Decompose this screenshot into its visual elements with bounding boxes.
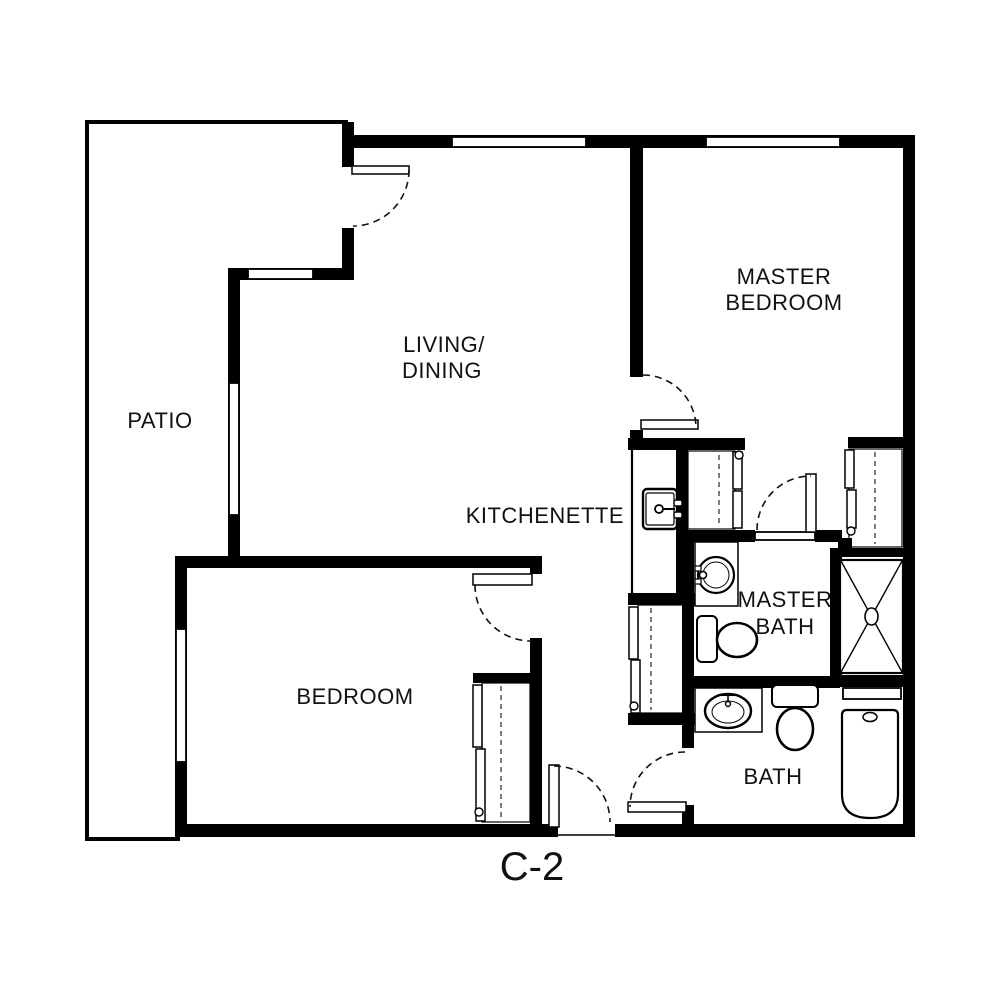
corridor-closet-right-door2 — [847, 490, 856, 528]
master-bath-faucet-handle-2 — [695, 579, 701, 584]
window-bedroom-left — [176, 629, 186, 762]
master-bedroom-label-line1: MASTER — [737, 264, 832, 289]
wall-bath-top — [694, 676, 840, 688]
shower-drain — [865, 608, 878, 625]
wall-bottom — [175, 824, 915, 837]
bath-door-swing — [630, 752, 685, 807]
patio-outline — [85, 122, 348, 840]
opening-patio-door — [342, 167, 354, 228]
kitchen-faucet-handle-2 — [674, 512, 682, 518]
bath-toilet-tank — [772, 685, 818, 707]
entry-door-swing — [554, 766, 610, 822]
plan-title: C-2 — [500, 845, 564, 889]
corridor-closet-left-door2 — [733, 491, 742, 528]
kitchenette-label: KITCHENETTE — [466, 503, 624, 528]
window-patio-step — [248, 269, 313, 279]
master-bath-faucet-handle-1 — [695, 566, 701, 571]
wall-shower-bottom — [838, 675, 903, 687]
bedroom-door-leaf — [473, 574, 532, 585]
kitchen-sink-drain — [655, 505, 663, 513]
master-bath-toilet-bowl — [717, 623, 757, 657]
window-living-top — [452, 137, 586, 147]
bathtub — [842, 710, 898, 818]
patio-door-leaf — [352, 166, 409, 174]
master-bath-label-line2: BATH — [755, 614, 814, 639]
bedroom-door-swing — [475, 585, 531, 641]
masterbath-door-swing — [757, 476, 811, 530]
master-bath-faucet — [700, 572, 707, 579]
living-dining-label-line2: DINING — [402, 358, 482, 383]
window-patio-living — [229, 383, 239, 515]
floor-plan-canvas: PATIO LIVING/ DINING MASTER BEDROOM KITC… — [0, 0, 1000, 1000]
bath-label: BATH — [743, 764, 802, 789]
corridor-closet-right-door1 — [845, 450, 854, 488]
bathtub-drain — [863, 713, 877, 722]
window-shelf-shower — [843, 688, 901, 699]
wall-master-bottom-right — [848, 437, 903, 448]
masterbath-door-leaf — [806, 474, 816, 532]
hall-closet — [638, 605, 683, 713]
corridor-closet-left — [688, 451, 735, 529]
bedroom-closet-top-wall — [473, 673, 533, 683]
bedroom-closet-door1 — [473, 685, 482, 747]
corridor-closet-left-knob — [735, 451, 743, 459]
kitchenette-fixtures — [632, 448, 682, 593]
floor-plan: PATIO LIVING/ DINING MASTER BEDROOM KITC… — [0, 0, 1000, 1000]
bath-door-leaf — [628, 802, 686, 812]
window-master-top — [706, 137, 840, 147]
bedroom-closet — [482, 683, 530, 822]
wall-bedroom-top — [175, 556, 542, 568]
wall-masterbath-left — [682, 530, 694, 748]
patio-door-swing — [353, 170, 409, 226]
living-dining-label-line1: LIVING/ — [403, 332, 485, 357]
corridor-closet-right-knob — [847, 527, 855, 535]
master-bath-toilet-tank — [697, 616, 717, 662]
bedroom-label: BEDROOM — [296, 684, 413, 709]
hall-closet-knob — [630, 702, 638, 710]
wall-right — [903, 135, 915, 837]
master-bedroom-label-line2: BEDROOM — [725, 290, 842, 315]
patio-label: PATIO — [127, 408, 192, 433]
bath-toilet-bowl — [777, 708, 813, 750]
entry-door-leaf — [549, 765, 559, 827]
master-bath-label-line1: MASTER — [738, 587, 833, 612]
kitchen-faucet-handle-1 — [674, 500, 682, 506]
bedroom-closet-knob — [475, 808, 483, 816]
hall-closet-door1 — [629, 607, 638, 659]
bath-fixtures — [695, 685, 898, 818]
master-door-leaf — [641, 420, 698, 429]
bath-faucet-drain — [726, 702, 731, 707]
sill-masterbath-door — [755, 532, 815, 540]
